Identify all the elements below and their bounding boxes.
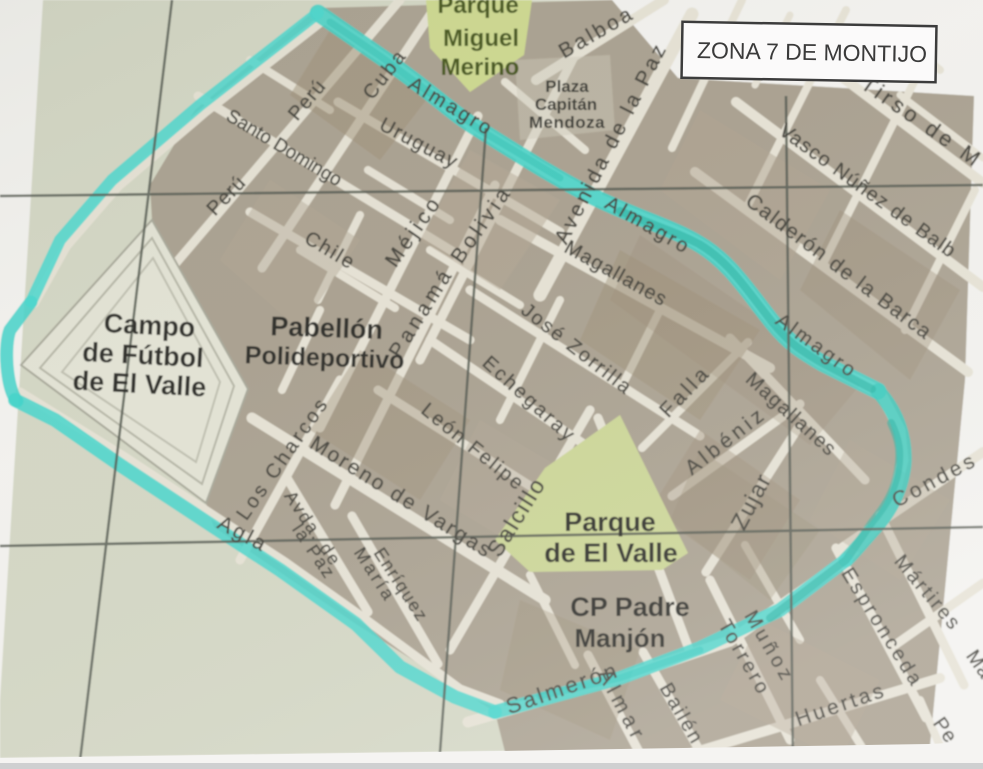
svg-text:ZONA 7 DE MONTIJO: ZONA 7 DE MONTIJO: [697, 37, 927, 67]
